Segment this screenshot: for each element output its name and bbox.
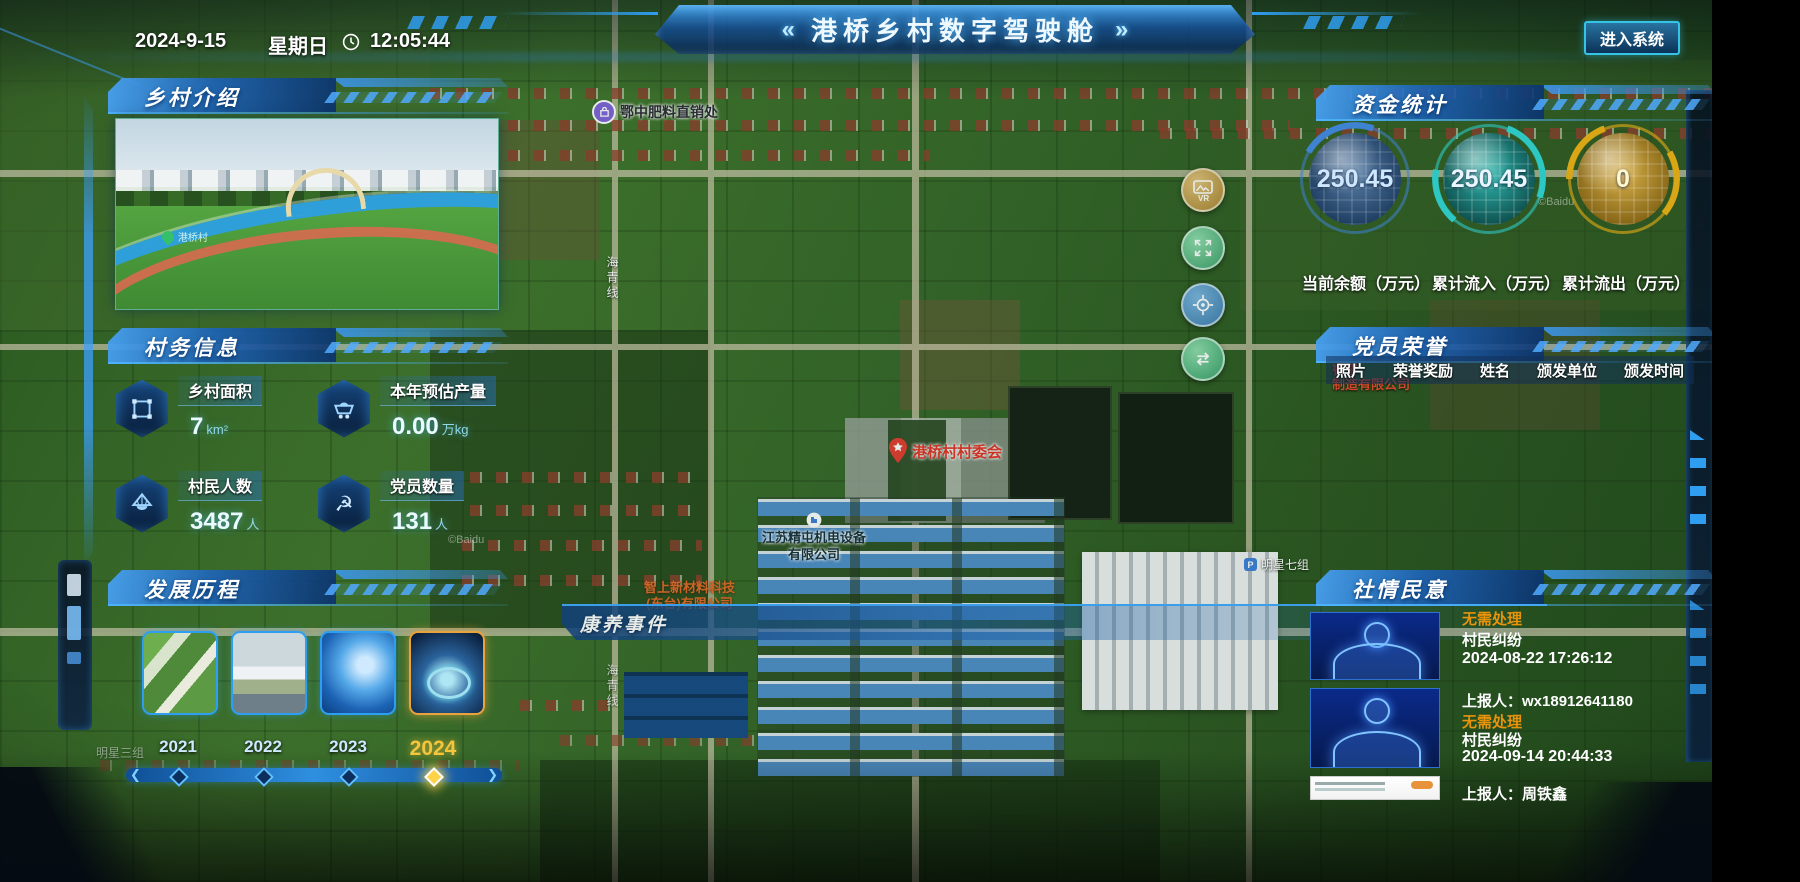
date-text: 2024-9-15: [135, 30, 226, 53]
poi-group-three[interactable]: 明星三组: [96, 744, 144, 761]
fund-gauge-labels: 当前余额（万元） 累计流入（万元） 累计流出（万元）: [1302, 270, 1690, 294]
stat-value: 3487: [190, 508, 243, 535]
panel-title: 村务信息: [144, 332, 240, 362]
year-2021[interactable]: 2021: [142, 737, 214, 761]
place-marker-icon: P: [1244, 558, 1257, 571]
poi-label: 明星三组: [96, 744, 144, 761]
history-thumb-2021[interactable]: [142, 631, 218, 715]
panel-header-funds: 资金统计: [1316, 85, 1716, 119]
terrain-blue-pools: [624, 672, 748, 738]
weekday-text: 星期日: [268, 30, 328, 59]
panel-header-history: 发展历程: [108, 570, 508, 604]
gauge-total-inflow: 250.45: [1434, 124, 1544, 234]
year-2024[interactable]: 2024: [397, 737, 469, 761]
gauge-label: 当前余额（万元）: [1302, 270, 1430, 294]
svg-text:VR: VR: [1198, 194, 1209, 202]
poi-label: 智上新材料科技: [644, 580, 735, 595]
mine-cart-icon: [318, 380, 370, 438]
road-label: 海青线: [604, 256, 621, 301]
clock-icon: [342, 33, 360, 51]
stat-village-area: 乡村面积 7km²: [116, 376, 310, 441]
title-chevron-left: «: [782, 16, 795, 44]
red-pin-star-icon: [888, 438, 908, 464]
switch-layers-button[interactable]: [1181, 337, 1225, 381]
fund-gauges: 250.45 250.45 0: [1300, 124, 1678, 234]
health-events-title: 康养事件: [580, 610, 668, 637]
gauge-value: 0: [1568, 124, 1678, 234]
stat-value: 131: [392, 508, 432, 535]
party-emblem-icon: ☭: [318, 475, 370, 533]
photo-caption: 港桥村: [178, 229, 208, 244]
top-bar: 2024-9-15 星期日 12:05:44 « 港桥乡村数字驾驶舱 » 进入系…: [0, 0, 1712, 60]
gauge-total-outflow: 0: [1568, 124, 1678, 234]
stat-estimated-output: 本年预估产量 0.00万kg: [318, 376, 512, 441]
honors-col-name: 姓名: [1480, 360, 1510, 381]
timeline-prev-arrow[interactable]: ❮: [130, 769, 141, 781]
gauge-value: 250.45: [1300, 124, 1410, 234]
poi-label: 江苏精屯机电设备: [762, 530, 866, 545]
dashboard-screen: 鄂中肥料直销处 港桥村村委会 江苏精屯机电设备 有限公司 智上新材料科技 (东台…: [0, 0, 1800, 882]
panel-title: 资金统计: [1352, 89, 1448, 119]
panel-title: 乡村介绍: [144, 82, 240, 112]
poi-label: 有限公司: [788, 547, 840, 562]
village-stats-grid: 乡村面积 7km² 本年预估产量 0.00万kg 村民人数 3487人: [116, 376, 512, 536]
poi-label: 鄂中肥料直销处: [620, 102, 718, 122]
green-pin-icon: [159, 228, 176, 245]
poi-company-jingtun[interactable]: 江苏精屯机电设备 有限公司: [762, 512, 866, 562]
farmer-hat-icon: [116, 475, 168, 533]
switch-layers-icon: [1192, 348, 1214, 370]
sentiment-item-2-photo[interactable]: [1310, 688, 1440, 768]
stat-label: 本年预估产量: [380, 376, 496, 406]
area-outline-icon: [116, 380, 168, 438]
banner-line-right: [1252, 12, 1422, 15]
poi-village-committee[interactable]: 港桥村村委会: [888, 438, 1002, 464]
history-years: 2021 2022 2023 2024: [142, 737, 469, 761]
stat-unit: 人: [246, 517, 259, 532]
vr-panorama-button[interactable]: VR: [1181, 168, 1225, 212]
enter-system-button[interactable]: 进入系统: [1584, 21, 1680, 55]
page-title: 港桥乡村数字驾驶舱: [811, 11, 1099, 48]
gauge-value: 250.45: [1434, 124, 1544, 234]
sentiment-datetime: 2024-09-14 20:44:33: [1462, 748, 1612, 766]
timeline-slider[interactable]: ❮ ❯: [126, 768, 502, 782]
stat-label: 党员数量: [380, 471, 464, 501]
honors-table-header: 照片 荣誉奖励 姓名 颁发单位 颁发时间: [1326, 356, 1694, 384]
right-black-strip: [1712, 0, 1800, 882]
honors-col-award: 荣誉奖励: [1393, 360, 1453, 381]
stat-value: 7: [190, 413, 203, 440]
photo-location-pin: 港桥村: [162, 229, 208, 244]
history-thumb-2024[interactable]: [409, 631, 485, 715]
history-thumb-2023[interactable]: [320, 631, 396, 715]
building-marker-icon: [806, 512, 822, 528]
stat-unit: 万kg: [442, 422, 469, 437]
stat-villager-count: 村民人数 3487人: [116, 471, 310, 536]
honors-col-issuer: 颁发单位: [1537, 360, 1597, 381]
honors-col-date: 颁发时间: [1624, 360, 1684, 381]
timeline-next-arrow[interactable]: ❯: [487, 769, 498, 781]
svg-text:☭: ☭: [335, 493, 354, 516]
gauge-label: 累计流入（万元）: [1432, 270, 1560, 294]
honors-col-photo: 照片: [1336, 360, 1366, 381]
panel-header-village-info: 村务信息: [108, 328, 508, 362]
panel-header-line: [108, 112, 508, 114]
banner-line-left: [498, 12, 658, 15]
gauge-label: 累计流出（万元）: [1562, 270, 1690, 294]
terrain-houses: [462, 540, 702, 551]
title-chevron-right: »: [1115, 16, 1128, 44]
store-marker-icon: [592, 100, 616, 124]
panel-title: 发展历程: [144, 574, 240, 604]
banner-decor-left: [407, 16, 509, 29]
history-thumbnails: [142, 631, 485, 715]
village-photo: 港桥村: [115, 118, 499, 310]
locate-button[interactable]: [1181, 283, 1225, 327]
sentiment-reporter: 上报人：wx18912641180: [1462, 690, 1633, 711]
stat-party-member-count: ☭ 党员数量 131人: [318, 471, 512, 536]
year-2022[interactable]: 2022: [227, 737, 299, 761]
gauge-current-balance: 250.45: [1300, 124, 1410, 234]
title-banner: « 港桥乡村数字驾驶舱 »: [655, 5, 1255, 54]
fullscreen-icon: [1192, 237, 1214, 259]
time-text: 12:05:44: [370, 30, 450, 53]
poi-label: 港桥村村委会: [912, 441, 1002, 462]
panel-title: 社情民意: [1352, 574, 1448, 604]
sentiment-reporter: 上报人：周铁鑫: [1462, 783, 1567, 804]
fullscreen-button[interactable]: [1181, 226, 1225, 270]
banner-decor-right: [1303, 16, 1405, 29]
sentiment-category: 村民纠纷: [1462, 729, 1522, 750]
locate-icon: [1192, 294, 1214, 316]
sentiment-item-3-photo[interactable]: [1310, 776, 1440, 800]
sentiment-item-1-photo[interactable]: [1310, 612, 1440, 680]
road-label: 海青线: [604, 664, 621, 709]
stat-unit: km²: [206, 422, 228, 437]
year-2023[interactable]: 2023: [312, 737, 384, 761]
history-thumb-2022[interactable]: [231, 631, 307, 715]
sentiment-datetime: 2024-08-22 17:26:12: [1462, 650, 1612, 668]
panel-header-village-intro: 乡村介绍: [108, 78, 508, 112]
poi-fertilizer-store[interactable]: 鄂中肥料直销处: [592, 100, 718, 124]
terrain-pond: [1118, 392, 1234, 524]
poi-label: 明星七组: [1261, 556, 1309, 573]
poi-group-seven[interactable]: P 明星七组: [1244, 556, 1309, 573]
panel-header-line: [1316, 119, 1716, 121]
panel-header-line: [108, 604, 508, 606]
panel-header-line: [1316, 604, 1716, 606]
panel-header-line: [108, 362, 508, 364]
stat-label: 乡村面积: [178, 376, 262, 406]
sentiment-status: 无需处理: [1462, 608, 1522, 629]
sentiment-category: 村民纠纷: [1462, 629, 1522, 650]
vr-panorama-icon: VR: [1191, 178, 1215, 202]
terrain-houses: [430, 150, 930, 161]
stat-label: 村民人数: [178, 471, 262, 501]
stat-unit: 人: [435, 517, 448, 532]
panel-header-sentiment: 社情民意: [1316, 570, 1716, 604]
stat-value: 0.00: [392, 413, 439, 440]
